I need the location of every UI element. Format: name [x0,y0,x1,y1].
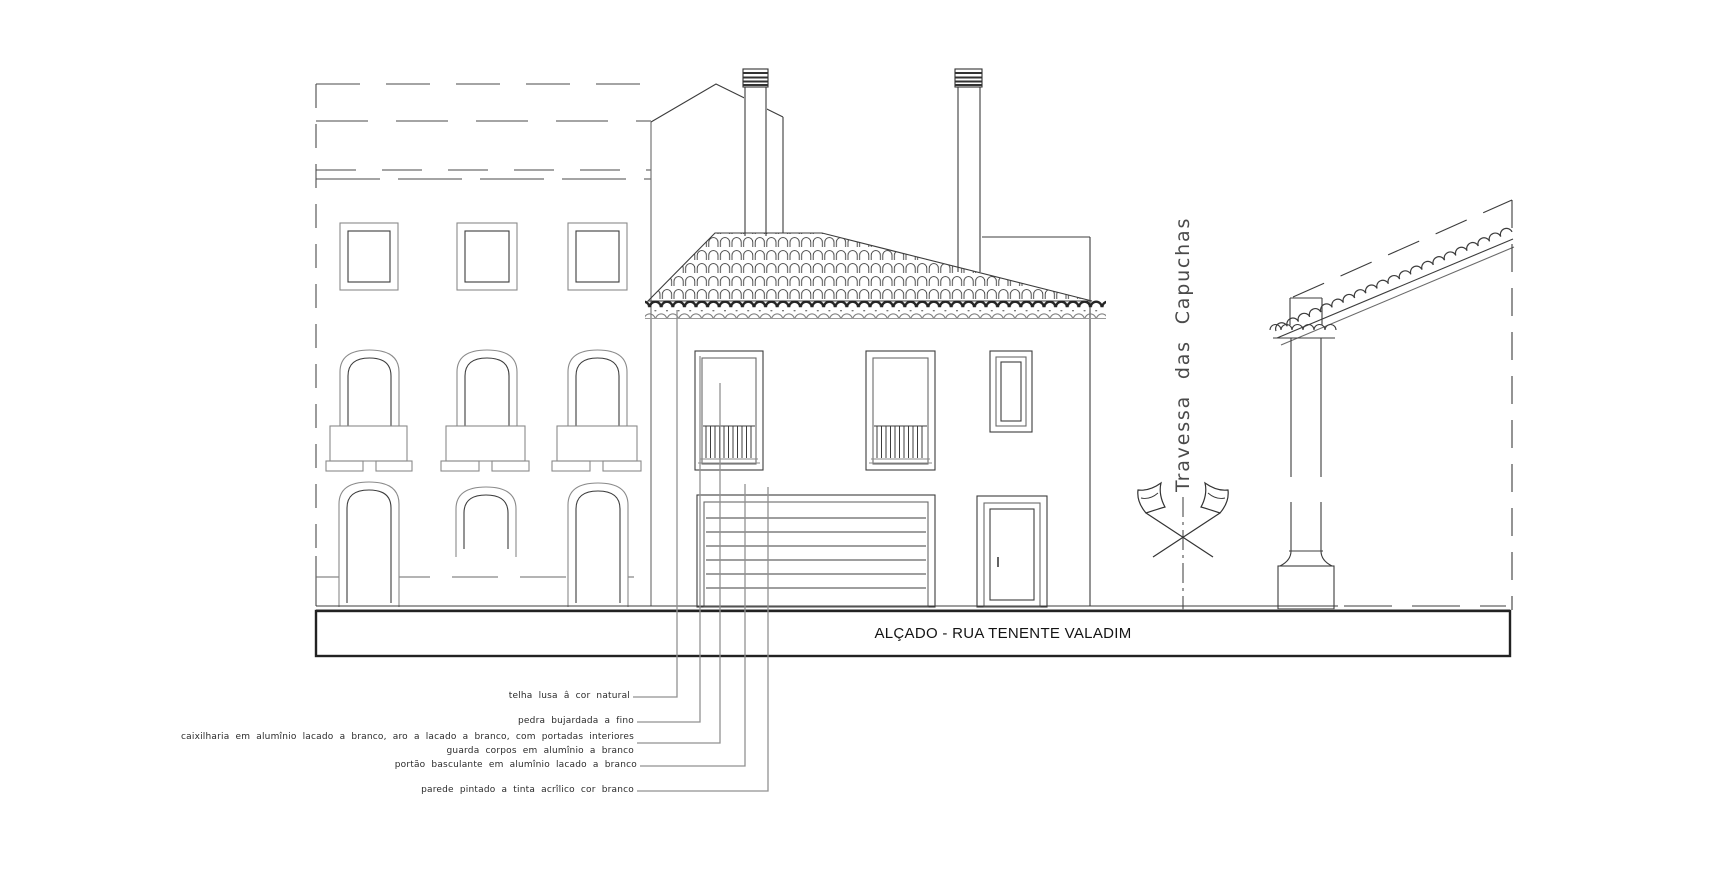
column-shaft [1291,338,1321,551]
square-window-inner [348,231,390,282]
chimney-cap-stripes [955,73,982,85]
square-window-inner [576,231,619,282]
column-plinth [1278,566,1334,609]
porch-roof-dashed-ridge [1293,200,1512,297]
square-window [340,223,398,290]
street-markers [1138,483,1228,610]
chimney-left [743,69,768,238]
elevation-drawing [0,0,1716,878]
annotation-pedra-bujardada: pedra bujardada a fino [518,716,634,726]
arched-door-row [339,482,628,607]
drawing-title: ALÇADO - RUA TENENTE VALADIM [850,625,1156,642]
railing-bars [877,426,922,458]
elevation-sheet: ALÇADO - RUA TENENTE VALADIM Travessa da… [0,0,1716,878]
square-window-row [340,223,627,290]
flag-pole [1153,513,1220,557]
arched-window [457,350,517,426]
arched-window-inner [576,358,619,426]
small-window [990,351,1032,432]
arched-window-inner [465,358,509,426]
window-sill [869,459,932,463]
porch-column [1270,298,1336,609]
square-window [457,223,517,290]
arched-door-inner [347,490,391,603]
balcony [557,426,637,461]
annotation-telha-lusa: telha lusa â cor natural [509,691,630,701]
flag-banner-wave [1141,493,1158,498]
annotation-caixilharia: caixilharia em alumînio lacado a branco,… [181,732,634,742]
arched-small-window-inner [464,495,508,549]
porch-fascia-line-2 [1281,247,1514,345]
street-label: Travessa das Capuchas [1172,217,1194,492]
balcony-plate [376,461,412,471]
balcony-plate [603,461,641,471]
porch-structure [1270,200,1514,610]
flag-pole [1146,513,1213,557]
arched-window [568,350,627,426]
balcony-plate [326,461,363,471]
window-with-railing [695,351,763,470]
flag-banner-wave [1208,493,1225,498]
square-window-inner [465,231,509,282]
balcony [446,426,525,461]
left-building-facade [316,84,651,607]
eave [645,299,1106,319]
arched-window [340,350,399,426]
column-base-flare [1280,551,1332,566]
arched-door-inner [576,491,620,603]
railing-bars [706,426,751,458]
window-with-railing [866,351,935,470]
balcony-plate [441,461,479,471]
roof-tiles [648,233,1092,301]
annotation-portao-basculante: portão basculante em alumînio lacado a b… [395,760,637,770]
balcony-plate [492,461,529,471]
entry-door [977,496,1047,607]
window-sill [698,459,760,463]
leader-pedra [637,356,700,722]
annotation-guarda-corpos: guarda corpos em alumînio a branco [447,746,634,756]
balcony-plate [552,461,590,471]
central-building [645,69,1106,607]
square-window [568,223,627,290]
garage-door [697,495,935,607]
arched-window-inner [348,358,391,426]
annotation-parede-pintado: parede pintado a tinta acrîlico cor bran… [421,785,634,795]
chimney-cap-stripes [743,73,768,85]
chimney-right [955,69,982,274]
balcony [330,426,407,461]
porch-eave-scallops [1276,228,1512,331]
arched-window-row [326,350,641,471]
